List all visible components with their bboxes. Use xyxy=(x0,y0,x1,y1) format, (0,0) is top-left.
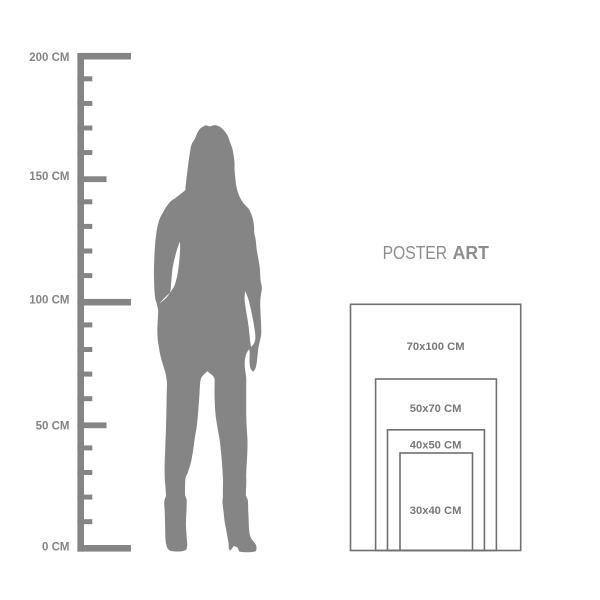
svg-text:POSTERART: POSTERART xyxy=(383,243,489,263)
svg-text:70x100 CM: 70x100 CM xyxy=(407,341,465,353)
svg-text:200 CM: 200 CM xyxy=(29,52,69,64)
svg-text:100 CM: 100 CM xyxy=(29,295,69,307)
svg-text:30x40 CM: 30x40 CM xyxy=(410,505,462,517)
svg-text:40x50 CM: 40x50 CM xyxy=(410,439,462,451)
svg-text:50 CM: 50 CM xyxy=(36,420,70,432)
svg-text:0 CM: 0 CM xyxy=(42,541,69,553)
svg-text:50x70 CM: 50x70 CM xyxy=(410,403,462,415)
svg-text:150 CM: 150 CM xyxy=(29,171,69,183)
